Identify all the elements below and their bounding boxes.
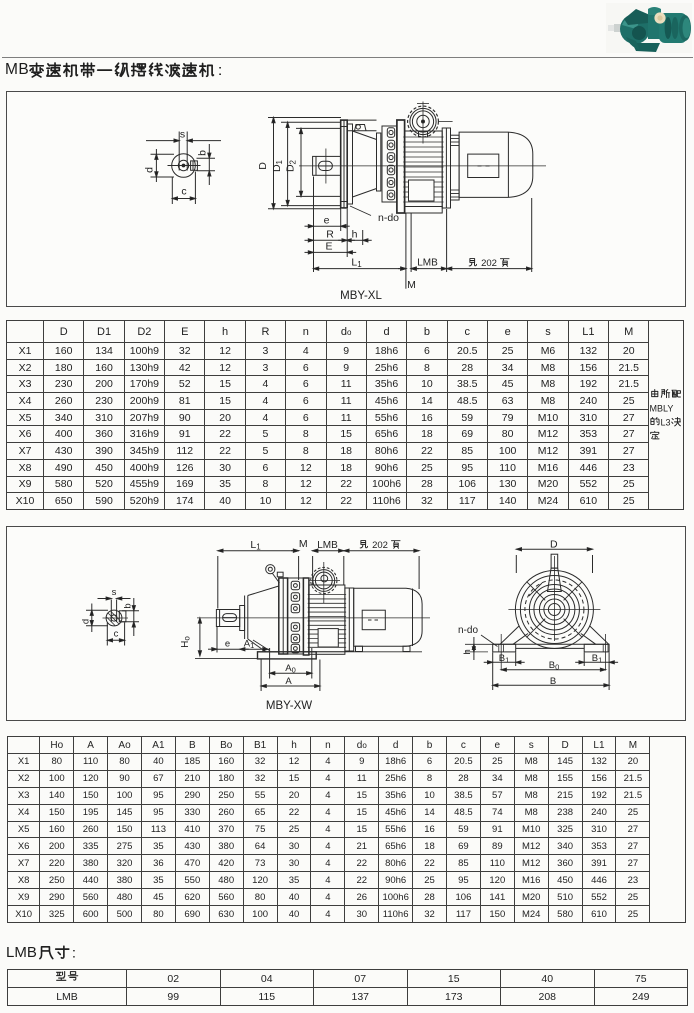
svg-text:D: D <box>257 162 269 170</box>
svg-text:L1: L1 <box>250 539 261 552</box>
svg-text:A0: A0 <box>285 663 296 675</box>
svg-text:c: c <box>114 629 119 640</box>
svg-text:B1: B1 <box>592 653 603 665</box>
svg-text:M: M <box>299 538 308 550</box>
svg-text:B1: B1 <box>499 653 510 665</box>
svg-text:h: h <box>462 649 473 654</box>
svg-text::: : <box>218 62 222 79</box>
svg-text:B0: B0 <box>549 660 560 672</box>
svg-text:MBY-XL: MBY-XL <box>340 290 382 302</box>
svg-text:D2: D2 <box>285 159 298 172</box>
svg-text:LMB: LMB <box>317 540 338 551</box>
svg-text:MBY-XW: MBY-XW <box>266 700 312 712</box>
svg-text:LMB: LMB <box>417 258 438 269</box>
svg-text:d: d <box>144 167 156 173</box>
svg-text:L1: L1 <box>351 257 362 270</box>
svg-text:b: b <box>122 603 133 608</box>
svg-text:B: B <box>550 676 556 687</box>
svg-text:E: E <box>325 241 332 253</box>
svg-text:A: A <box>285 676 292 687</box>
svg-text:R: R <box>326 229 334 241</box>
svg-text:MBLY: MBLY <box>650 404 673 414</box>
svg-text:c: c <box>181 186 186 198</box>
svg-text:D1: D1 <box>271 159 284 172</box>
svg-text:L3: L3 <box>661 418 671 428</box>
svg-text:d: d <box>80 619 91 624</box>
svg-text:n-do: n-do <box>378 212 399 224</box>
svg-text:h: h <box>352 228 358 240</box>
svg-text:s: s <box>112 587 117 598</box>
svg-text:s: s <box>180 129 185 141</box>
svg-text:202: 202 <box>481 258 497 269</box>
svg-text:n-do: n-do <box>458 625 478 636</box>
svg-text::: : <box>72 945 76 961</box>
svg-text:Ho: Ho <box>180 636 192 648</box>
svg-text:D: D <box>550 539 558 551</box>
svg-text:202: 202 <box>372 540 388 551</box>
svg-text:e: e <box>225 639 230 650</box>
svg-text:M: M <box>407 279 416 291</box>
svg-text:A1: A1 <box>244 639 255 651</box>
svg-text:b: b <box>197 150 209 156</box>
svg-text:e: e <box>324 215 330 227</box>
